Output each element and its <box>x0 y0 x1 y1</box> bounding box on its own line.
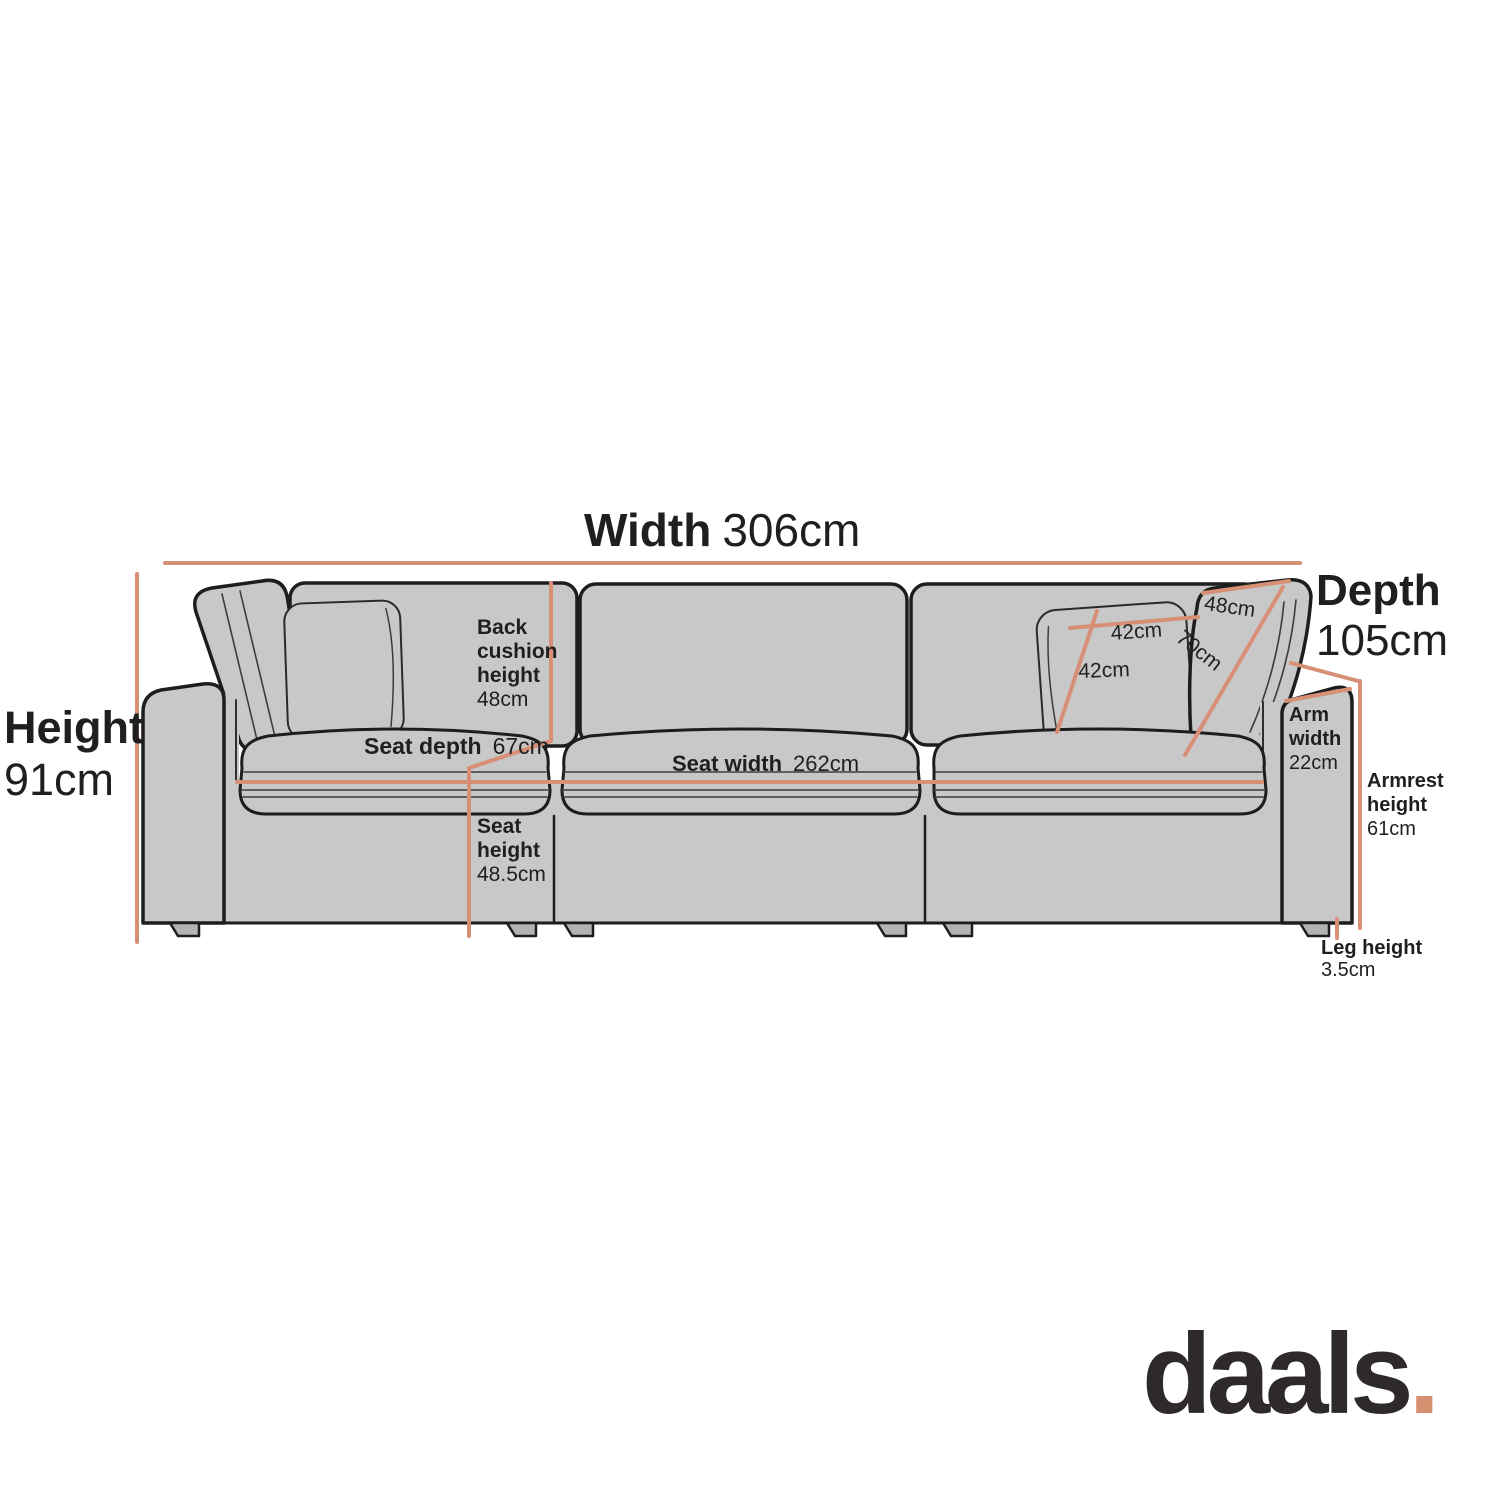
product-dimension-diagram: Width306cm Depth 105cm Height 91cm Back … <box>0 0 1500 1500</box>
seat-width-label: Seat width <box>672 751 782 776</box>
arm-width-label: Arm width <box>1289 703 1341 751</box>
height-label: Height <box>4 702 144 754</box>
left-armrest <box>143 684 224 923</box>
depth-annotation: Depth 105cm <box>1316 566 1448 666</box>
width-annotation: Width306cm <box>584 504 860 557</box>
scatter-cushion-height-value: 42cm <box>1078 658 1130 684</box>
height-annotation: Height 91cm <box>4 702 144 806</box>
seat-height-label: Seat height <box>477 815 546 863</box>
seat-depth-label: Seat depth <box>364 733 482 759</box>
seat-height-annotation: Seat height 48.5cm <box>477 815 546 887</box>
seat-width-value: 262cm <box>793 751 859 776</box>
leg-height-label: Leg height <box>1321 937 1422 959</box>
seat-width-annotation: Seat width262cm <box>672 751 859 776</box>
seat-depth-annotation: Seat depth67cm <box>364 733 549 759</box>
left-scatter-pillow <box>284 600 405 740</box>
seat-height-value: 48.5cm <box>477 863 546 887</box>
sofa-legs <box>170 923 1329 936</box>
height-value: 91cm <box>4 754 144 806</box>
leg-height-annotation: Leg height 3.5cm <box>1321 937 1422 981</box>
back-cushion-height-label: Back cushion height <box>477 616 558 688</box>
depth-value: 105cm <box>1316 616 1448 666</box>
sofa-illustration <box>0 0 1500 1500</box>
armrest-height-label: Armrest height <box>1367 769 1444 817</box>
width-value: 306cm <box>722 504 860 556</box>
back-cushion-middle <box>580 584 907 745</box>
seat-depth-value: 67cm <box>493 733 549 759</box>
arm-width-annotation: Arm width 22cm <box>1289 703 1341 775</box>
back-cushion-height-value: 48cm <box>477 688 558 712</box>
brand-logo-dot: . <box>1409 1311 1441 1438</box>
back-cushion-height-annotation: Back cushion height 48cm <box>477 616 558 712</box>
leg-height-value: 3.5cm <box>1321 959 1422 981</box>
armrest-height-annotation: Armrest height 61cm <box>1367 769 1444 841</box>
width-label: Width <box>584 504 711 556</box>
brand-name: daals <box>1142 1311 1409 1438</box>
brand-logo: daals. <box>1142 1318 1440 1432</box>
armrest-height-value: 61cm <box>1367 817 1444 841</box>
arm-width-value: 22cm <box>1289 751 1341 775</box>
depth-label: Depth <box>1316 566 1448 616</box>
scatter-cushion-width-value: 42cm <box>1110 618 1163 646</box>
